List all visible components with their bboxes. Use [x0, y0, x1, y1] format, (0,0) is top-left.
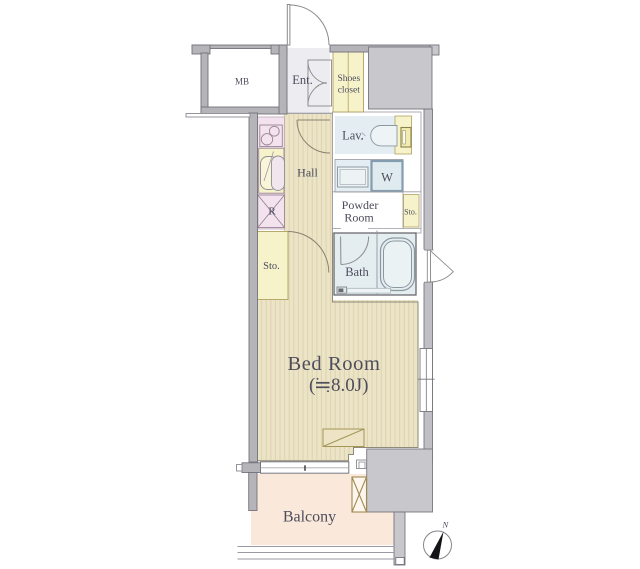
svg-text:Room: Room [344, 211, 374, 225]
svg-text:Sto.: Sto. [404, 208, 417, 217]
svg-text:MB: MB [235, 77, 249, 87]
svg-text:Ent.: Ent. [292, 73, 312, 87]
svg-text:Balcony: Balcony [283, 509, 336, 526]
svg-text:Shoes: Shoes [337, 74, 360, 84]
svg-text:R: R [268, 206, 276, 218]
svg-text:Hall: Hall [297, 166, 318, 180]
svg-text:Bed Room: Bed Room [287, 353, 380, 375]
svg-text:closet: closet [338, 86, 361, 96]
svg-text:W: W [381, 171, 393, 185]
svg-text:Bath: Bath [345, 265, 369, 279]
svg-text:Lav.: Lav. [342, 129, 364, 143]
svg-text:Sto.: Sto. [263, 261, 280, 272]
